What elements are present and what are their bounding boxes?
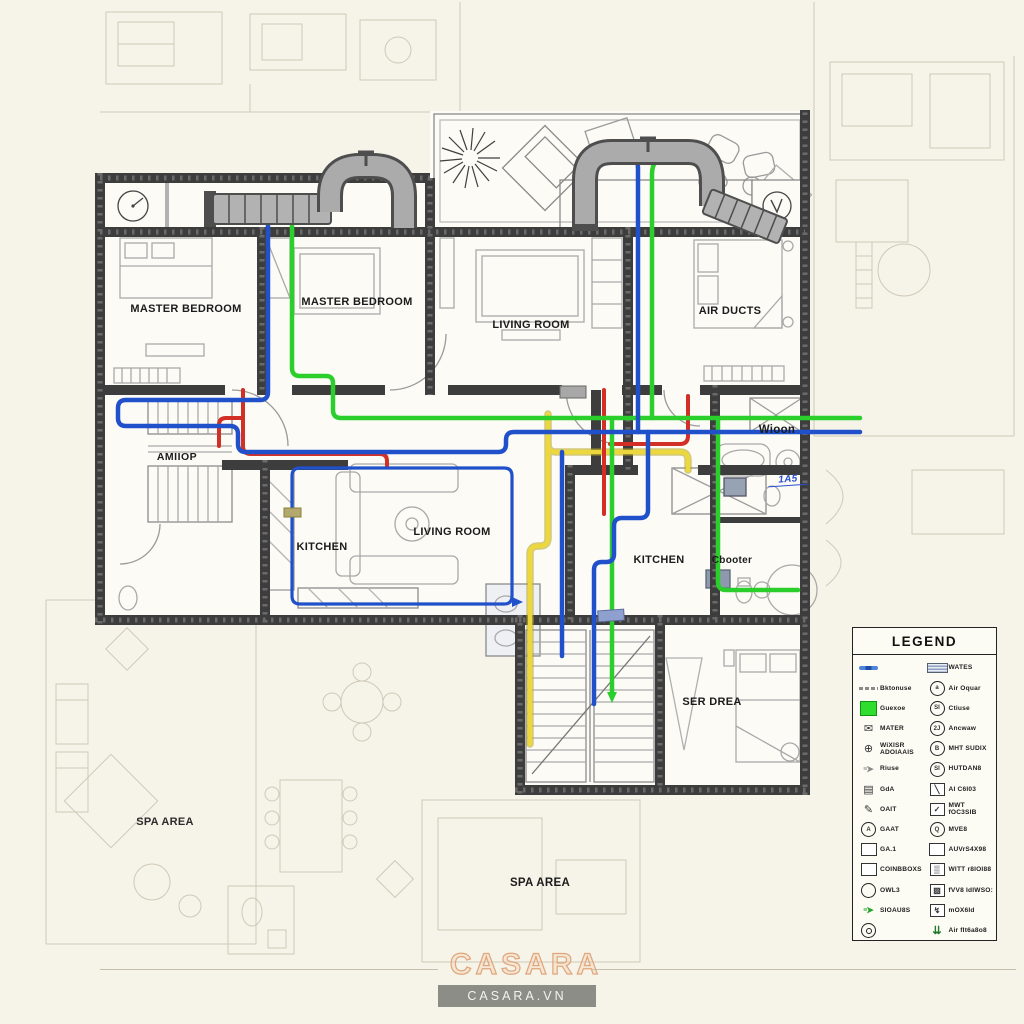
legend-row: AGAAT [857, 820, 926, 840]
legend-row: GA.1 [857, 840, 926, 860]
legend-row: OWL3 [857, 880, 926, 900]
wave-box-icon: ▨ [926, 884, 949, 897]
legend-label: WiXISR ADOIAAIS [880, 742, 926, 757]
legend-col-right: WATESaAir OquarSICtiuse2JAncwawBMHT SUDI… [926, 658, 995, 941]
legend-row: ➤SIOAU8S [857, 900, 926, 920]
outlet-circle-icon [857, 883, 880, 898]
air-supply-icon: B [926, 741, 949, 756]
legend-row [857, 658, 926, 678]
legend-row: ✎OAIT [857, 799, 926, 819]
legend-row: aAir Oquar [926, 678, 995, 698]
legend-row: ▒WITT r8IOI88 [926, 860, 995, 880]
legend-label: Ancwaw [949, 725, 977, 732]
control-box-icon [857, 863, 880, 876]
legend-row: COINBBOXS [857, 860, 926, 880]
legend-label: WATES [949, 664, 973, 671]
legend-row: Bktonuse [857, 678, 926, 698]
legend-col-left: BktonuseGuexoe✉MATER⊕WiXISR ADOIAAIS➤Riu… [857, 658, 926, 941]
watermark-rule-right [592, 969, 1016, 970]
access-box-icon [926, 843, 949, 856]
legend-row: ⊕WiXISR ADOIAAIS [857, 739, 926, 759]
legend-label: MATER [880, 725, 904, 732]
legend-label: WITT r8IOI88 [949, 866, 992, 873]
legend-label: Guexoe [880, 705, 905, 712]
legend-row: Guexoe [857, 698, 926, 718]
wire-panel-icon: ▒ [926, 863, 949, 876]
gas-box-icon [857, 843, 880, 856]
checked-box-icon: ✓ [926, 803, 949, 816]
globe-valve-icon: ⊕ [857, 742, 880, 755]
water-pipe-icon [857, 666, 880, 670]
legend-title: LEGEND [853, 628, 996, 655]
legend-label: Air Oquar [949, 685, 981, 692]
legend-label: COINBBOXS [880, 866, 922, 873]
watermark-rule-left [100, 969, 438, 970]
legend-label: mOX6Id [949, 907, 975, 914]
legend-label: GAAT [880, 826, 899, 833]
legend-label: Ctiuse [949, 705, 970, 712]
heating-icon: SI [926, 762, 949, 777]
room-label-master-bedroom-mid: MASTER BEDROOM [289, 296, 425, 308]
legend-label: Air fIt6a8o8 [949, 927, 987, 934]
legend-label: AUVrS4X98 [949, 846, 987, 853]
legend-label: MWT fOC3SIB [949, 802, 995, 817]
legend-row: AUVrS4X98 [926, 840, 995, 860]
legend-label: OAIT [880, 806, 897, 813]
room-label-bathroom-right: Wioon [737, 424, 817, 436]
closet-icon: SI [926, 701, 949, 716]
room-label-hall-stairs: AMIIOP [133, 451, 221, 463]
legend-row: ✓MWT fOC3SIB [926, 799, 995, 819]
circle-a-icon: A [857, 822, 880, 837]
ancillary-icon: 2J [926, 721, 949, 736]
watermark-brand: CASARA [444, 948, 608, 982]
legend-label: AI C6I03 [949, 786, 977, 793]
air-release-icon: ⇊ [926, 924, 949, 937]
camera-circle-icon [857, 923, 880, 938]
room-label-living-room-top: LIVING ROOM [471, 319, 591, 331]
legend-label: SIOAU8S [880, 907, 910, 914]
legend-row: SIHUTDAN8 [926, 759, 995, 779]
legend-box: LEGEND BktonuseGuexoe✉MATER⊕WiXISR ADOIA… [852, 627, 997, 941]
legend-row: BMHT SUDIX [926, 739, 995, 759]
flow-arrow-icon: ➤ [857, 764, 880, 775]
room-label-spa-center: SPA AREA [486, 877, 594, 889]
legend-row: QMVE8 [926, 820, 995, 840]
air-outlet-icon: a [926, 681, 949, 696]
supply-square-icon [857, 701, 880, 716]
mixer-box-icon: ↯ [926, 904, 949, 917]
floor-plan-page: { "watermark": { "brand": "CASARA", "sit… [0, 0, 1024, 1024]
clamp-icon: ▤ [857, 783, 880, 796]
supply-arrow-icon: ➤ [857, 905, 880, 916]
legend-label: GA.1 [880, 846, 896, 853]
legend-label: HUTDAN8 [949, 765, 982, 772]
legend-row: SICtiuse [926, 698, 995, 718]
meter-circle-icon: Q [926, 822, 949, 837]
room-label-closet-right: Cbooter [694, 555, 770, 566]
legend-label: GdA [880, 786, 895, 793]
legend-label: MHT SUDIX [949, 745, 987, 752]
legend-row: ✉MATER [857, 719, 926, 739]
room-label-master-bedroom-left: MASTER BEDROOM [118, 303, 254, 315]
room-label-spa-left: SPA AREA [114, 816, 216, 828]
water-meter-icon [926, 663, 949, 673]
watermark-site: CASARA.VN [438, 985, 596, 1007]
aircon-box-icon: ╲ [926, 783, 949, 796]
legend-row: WATES [926, 658, 995, 678]
legend-row: ▤GdA [857, 779, 926, 799]
legend-label: OWL3 [880, 887, 900, 894]
pen-icon: ✎ [857, 803, 880, 816]
room-label-kitchen-left: KITCHEN [269, 541, 375, 553]
vent-envelope-icon: ✉ [857, 722, 880, 735]
room-label-air-ducts: AIR DUCTS [669, 305, 791, 317]
duct-line-icon [857, 687, 880, 690]
legend-columns: BktonuseGuexoe✉MATER⊕WiXISR ADOIAAIS➤Riu… [853, 655, 996, 941]
room-label-bedroom-right: SER DREA [659, 696, 765, 708]
legend-row: ➤Riuse [857, 759, 926, 779]
legend-label: fVV8 IdIWSO: [949, 887, 994, 894]
legend-row: ▨fVV8 IdIWSO: [926, 880, 995, 900]
legend-label: MVE8 [949, 826, 968, 833]
legend-row [857, 920, 926, 940]
legend-row: ⇊Air fIt6a8o8 [926, 920, 995, 940]
room-label-living-room-center: LIVING ROOM [394, 526, 510, 538]
legend-label: Bktonuse [880, 685, 912, 692]
legend-row: ↯mOX6Id [926, 900, 995, 920]
legend-label: Riuse [880, 765, 899, 772]
legend-row: 2JAncwaw [926, 719, 995, 739]
legend-row: ╲AI C6I03 [926, 779, 995, 799]
